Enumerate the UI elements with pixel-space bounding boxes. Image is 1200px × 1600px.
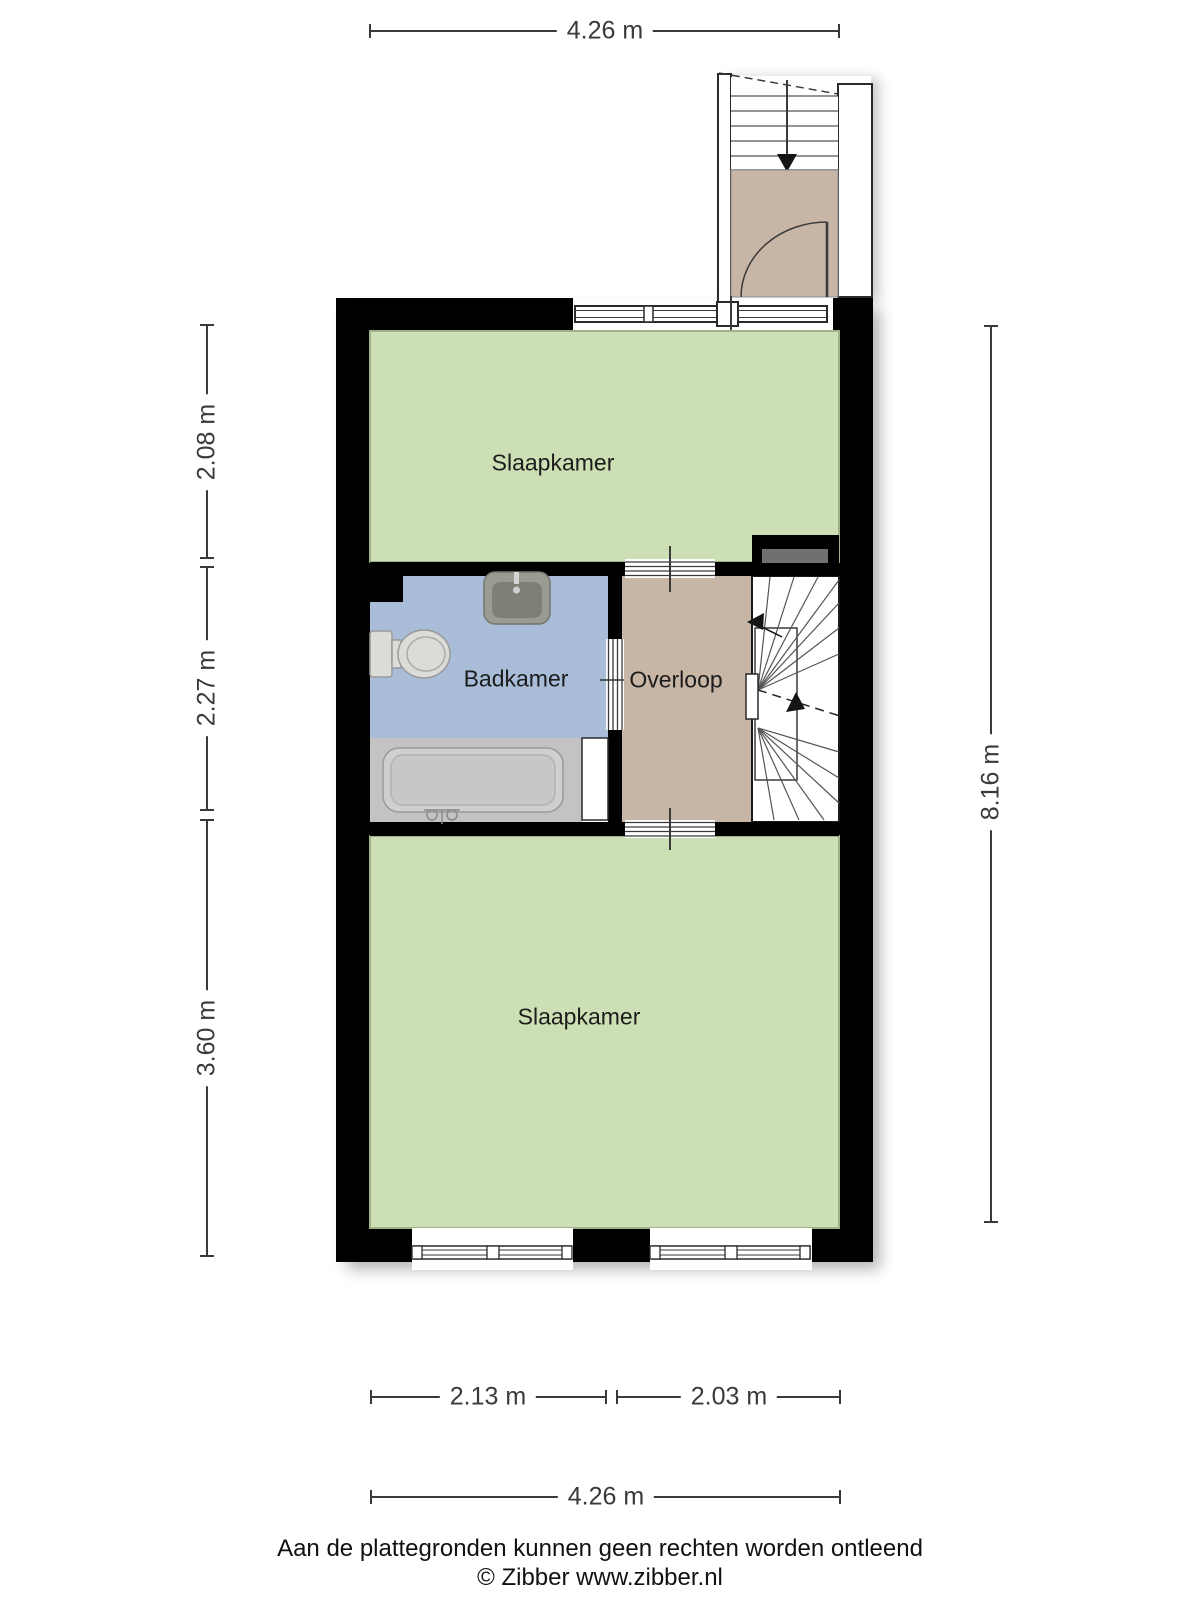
sink-icon — [484, 572, 550, 624]
enclosure-left-wall — [718, 74, 731, 326]
room-label-overloop: Overloop — [629, 667, 722, 694]
footer-disclaimer: Aan de plattegronden kunnen geen rechten… — [0, 1534, 1200, 1563]
dim-label-bottom-left: 2.13 m — [440, 1383, 536, 1412]
dim-label-right-total: 8.16 m — [977, 734, 1006, 830]
room-overloop — [622, 576, 752, 822]
room-slaapkamer-bottom — [370, 836, 839, 1228]
floor-plan-drawing — [0, 0, 1200, 1600]
footer: Aan de plattegronden kunnen geen rechten… — [0, 1534, 1200, 1592]
dim-label-bottom-right: 2.03 m — [681, 1383, 777, 1412]
dim-label-left-top: 2.08 m — [193, 394, 222, 490]
dim-label-left-bottom: 3.60 m — [193, 990, 222, 1086]
top-stair-enclosure — [718, 73, 872, 326]
room-label-slaapkamer-bottom: Slaapkamer — [518, 1004, 641, 1031]
room-slaapkamer-top — [370, 331, 839, 562]
bathtub-icon — [383, 748, 563, 824]
door-post — [717, 302, 738, 326]
room-label-badkamer: Badkamer — [464, 666, 569, 693]
railing-post — [746, 674, 758, 719]
dim-label-top-width: 4.26 m — [557, 17, 653, 46]
stair-head-inset — [762, 549, 828, 563]
floor-plan-page: Slaapkamer Badkamer Overloop Slaapkamer … — [0, 0, 1200, 1600]
dim-label-left-middle: 2.27 m — [193, 640, 222, 736]
dim-label-bottom-total: 4.26 m — [558, 1483, 654, 1512]
door-leaf — [582, 738, 608, 820]
enclosure-right-wall — [838, 84, 872, 297]
bottom-window-left — [412, 1228, 573, 1270]
upper-landing — [731, 170, 838, 297]
footer-copyright: © Zibber www.zibber.nl — [0, 1563, 1200, 1592]
bottom-window-right — [650, 1228, 812, 1270]
toilet-icon — [370, 630, 450, 678]
room-label-slaapkamer-top: Slaapkamer — [492, 450, 615, 477]
top-wall-window — [575, 306, 717, 322]
